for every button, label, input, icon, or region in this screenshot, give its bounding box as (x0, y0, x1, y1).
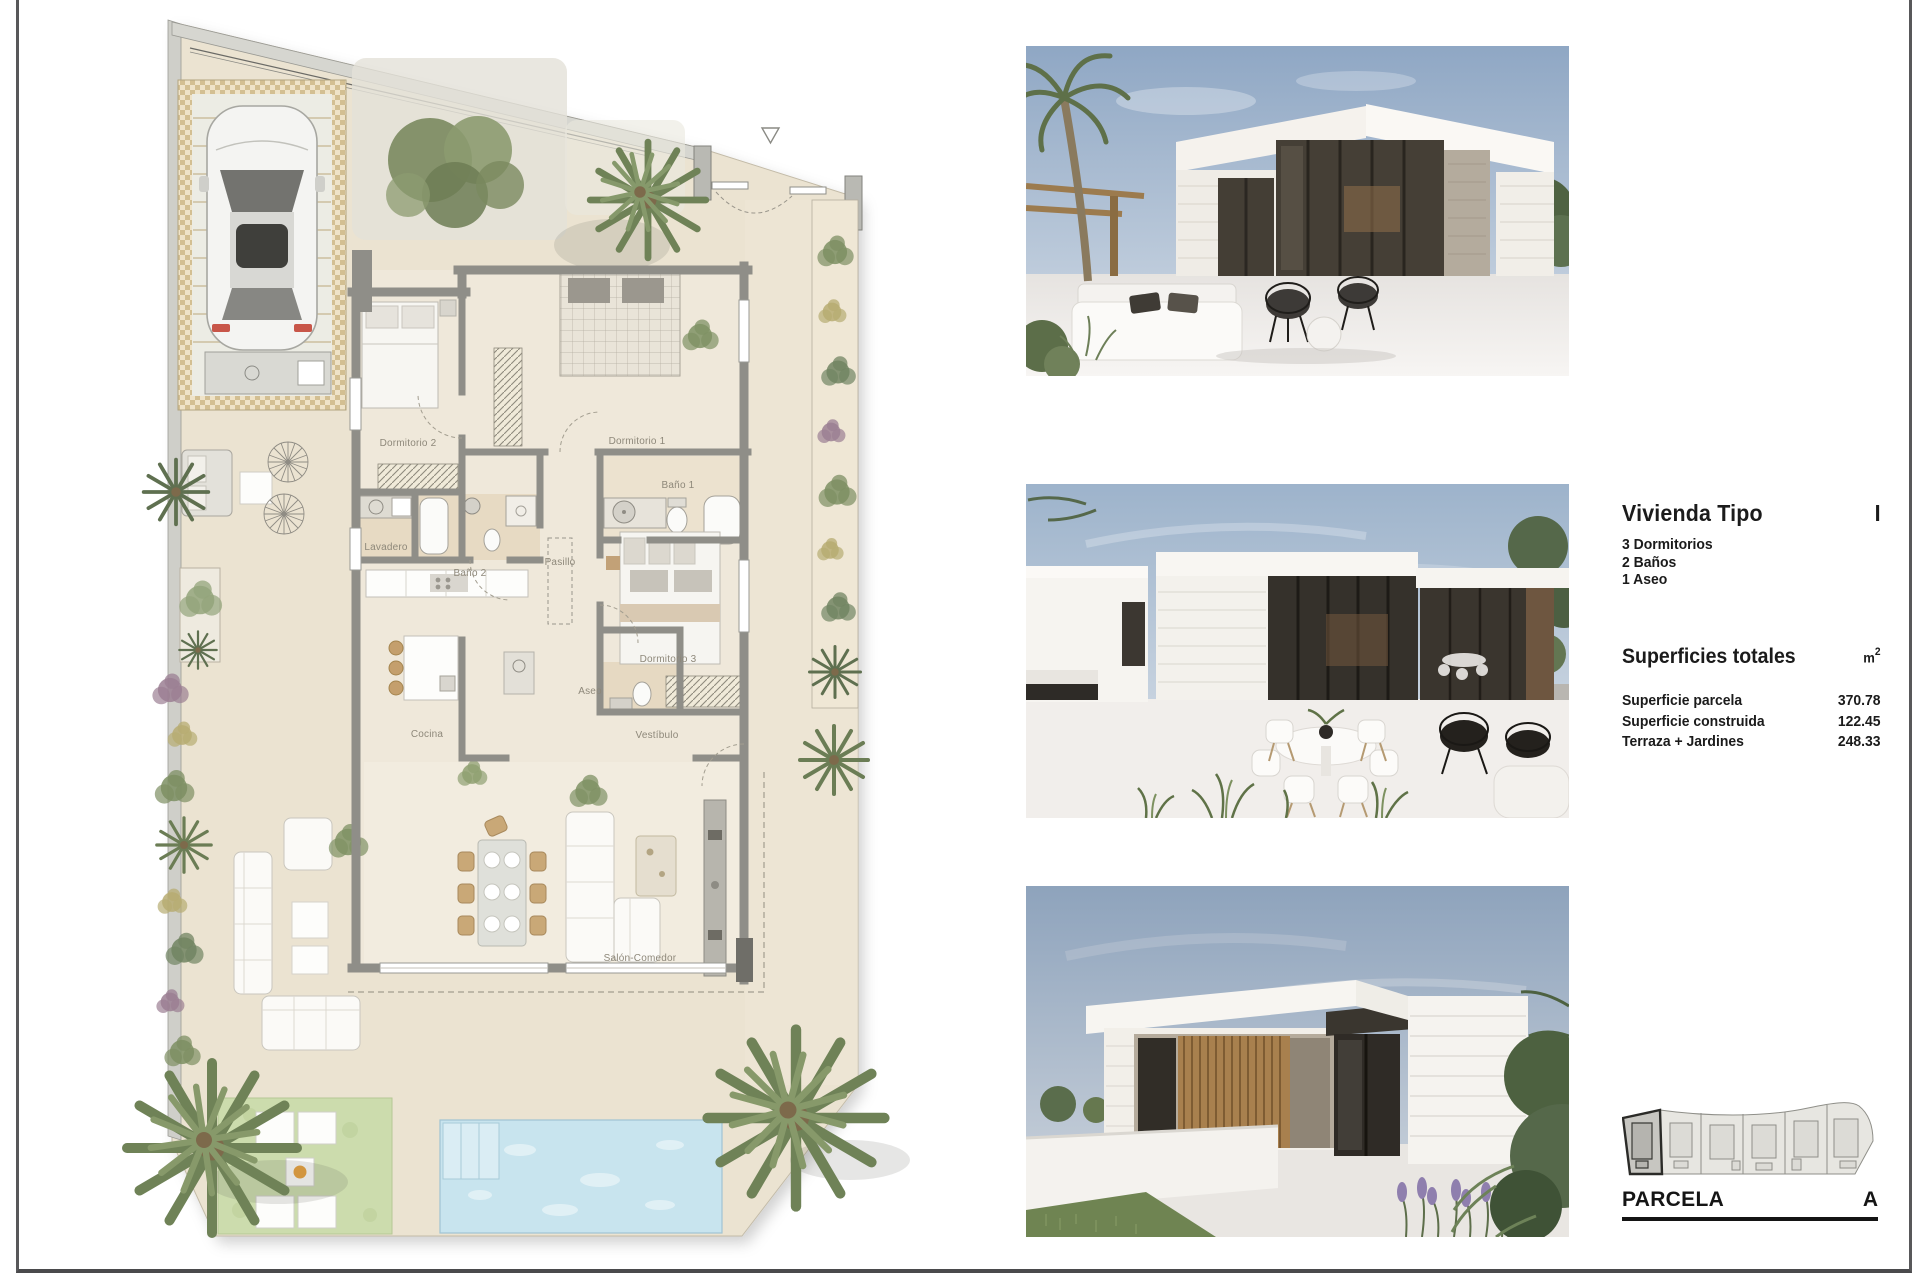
parcel-label: PARCELA (1622, 1188, 1724, 1212)
room-label-lavadero: Lavadero (364, 542, 408, 553)
room-label-banio1: Baño 1 (662, 480, 695, 491)
dwelling-type-title: Vivienda Tipo (1622, 500, 1763, 527)
car-icon (199, 106, 325, 350)
room-label-banio2: Baño 2 (454, 568, 487, 579)
wall-column (736, 938, 753, 982)
feature-toilets: 1 Aseo (1622, 571, 1881, 589)
surface-label: Terraza + Jardines (1622, 732, 1744, 753)
entrance-marker-icon (762, 128, 779, 143)
pool-steps (443, 1123, 499, 1179)
render-photo-terrace (1026, 46, 1569, 376)
dwelling-type-code: I (1875, 500, 1881, 527)
room-label-aseo: Aseo (578, 686, 602, 697)
wall-pier (352, 250, 372, 312)
swimming-pool (440, 1120, 722, 1233)
parcel-lot (1752, 1125, 1776, 1170)
surface-row-terraza: Terraza + Jardines 248.33 (1622, 732, 1881, 753)
surface-label: Superficie parcela (1622, 691, 1742, 712)
surfaces-heading: Superficies totales (1622, 645, 1796, 669)
room-label-cocina: Cocina (411, 729, 444, 740)
surface-row-parcela: Superficie parcela 370.78 (1622, 691, 1881, 712)
surface-value: 122.45 (1838, 712, 1881, 733)
parcel-underline (1622, 1217, 1878, 1221)
room-label-dormitorio1: Dormitorio 1 (609, 436, 666, 447)
room-label-dormitorio2: Dormitorio 2 (380, 438, 437, 449)
parcel-site-diagram (1622, 1094, 1878, 1180)
room-label-vestibulo: Vestíbulo (636, 730, 679, 741)
render-photo-garden (1026, 886, 1569, 1237)
garage-carport (178, 80, 346, 410)
garage-counter (205, 352, 331, 394)
surface-value: 248.33 (1838, 732, 1881, 753)
surfaces-unit: m2 (1863, 648, 1880, 666)
feature-bathrooms: 2 Baños (1622, 554, 1881, 572)
floor-plan: Dormitorio 2 Dormitorio 1 Baño 1 Lavader… (0, 0, 960, 1280)
surface-row-construida: Superficie construida 122.45 (1622, 712, 1881, 733)
parcel-panel: PARCELA A (1622, 1094, 1878, 1221)
lavadero-fixtures (360, 496, 414, 518)
room-label-pasillo: Pasillo (545, 557, 576, 568)
info-panel: Vivienda Tipo I 3 Dormitorios 2 Baños 1 … (1622, 500, 1902, 753)
feature-bedrooms: 3 Dormitorios (1622, 536, 1881, 554)
bed-dormitorio3 (606, 532, 720, 664)
parcel-value: A (1863, 1188, 1878, 1212)
surface-label: Superficie construida (1622, 712, 1765, 733)
room-label-dormitorio3: Dormitorio 3 (640, 654, 697, 665)
room-label-salon-comedor: Salón-Comedor (604, 953, 677, 964)
render-photo-dining-terrace (1026, 484, 1569, 818)
planting-bed-east (812, 200, 858, 708)
surface-value: 370.78 (1838, 691, 1881, 712)
floor-plan-drawing: Dormitorio 2 Dormitorio 1 Baño 1 Lavader… (0, 0, 960, 1280)
